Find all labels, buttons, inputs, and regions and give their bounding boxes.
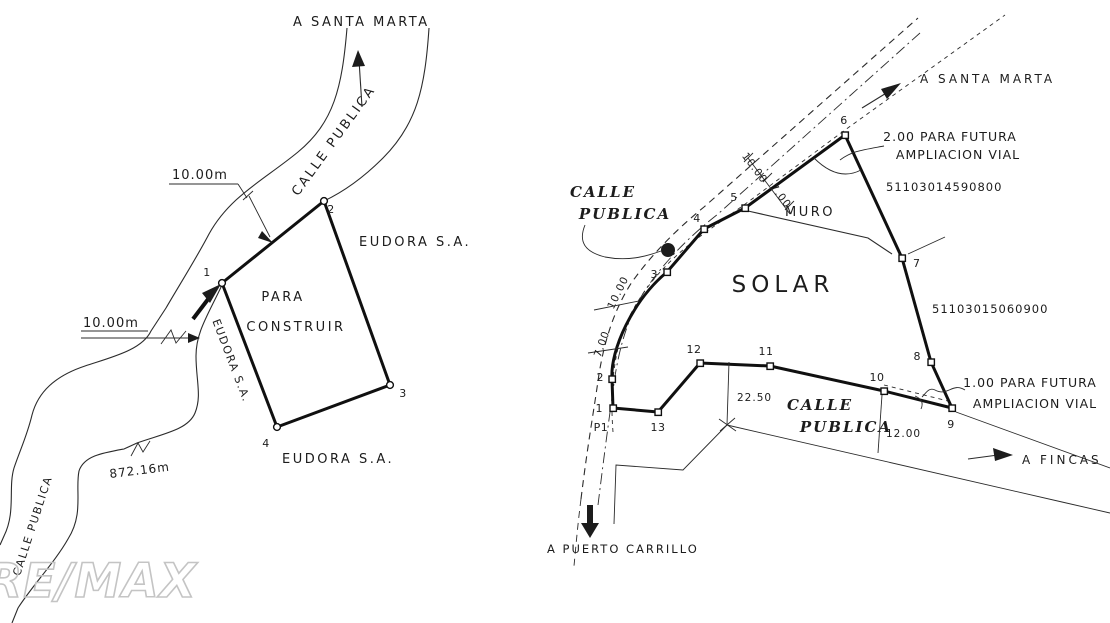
- vertex-6-label: 6: [840, 114, 848, 127]
- santa-marta-arrow-head: [352, 50, 365, 67]
- cadastral-right-number: 51103015060900: [932, 302, 1048, 316]
- vertex-1-label: 1: [596, 402, 604, 415]
- note-east-line2: AMPLIACION VIAL: [973, 396, 1097, 411]
- left-dim-side-break: [161, 330, 186, 344]
- left-vertex-1-marker: [219, 280, 226, 287]
- vertex-3-label: 3: [651, 268, 659, 281]
- vertex-12-marker: [697, 360, 703, 366]
- vertex-7-label: 7: [913, 257, 921, 270]
- dest-east-label: A FINCAS: [1022, 453, 1102, 467]
- bottom-road-label-2: PUBLICA: [799, 418, 892, 436]
- vertex-13-marker: [655, 409, 661, 415]
- vertex-p1-label: P1: [594, 421, 609, 434]
- vertex-8-label: 8: [914, 350, 922, 363]
- note-east-line1: 1.00 PARA FUTURA: [963, 375, 1097, 390]
- vertex-10-label: 10: [870, 371, 885, 384]
- vertex-3-marker: [664, 269, 670, 275]
- right-road-left-label-1: CALLE: [570, 183, 636, 201]
- note-top-line2: AMPLIACION VIAL: [896, 147, 1020, 162]
- calle-publica-leader: [582, 225, 661, 259]
- left-vertex-4-label: 4: [262, 437, 270, 450]
- parcel-use-line1: PARA: [261, 290, 304, 305]
- fincas-arrow-line: [968, 455, 998, 459]
- left-vertex-1-label: 1: [203, 266, 211, 279]
- vertex-1-marker: [610, 405, 616, 411]
- dim-road-w-1-label: 10.00: [605, 274, 631, 311]
- dim-22-line: [727, 362, 729, 425]
- parcel-use-line2: CONSTRUIR: [246, 320, 345, 335]
- angle-arc-vertex-6: [814, 158, 861, 174]
- left-vertex-2-label: 2: [327, 203, 335, 216]
- owner-bottom-label: EUDORA S.A.: [282, 452, 394, 467]
- dim-22-label: 22.50: [737, 392, 772, 404]
- vertex-12-label: 12: [687, 343, 702, 356]
- vertex-13-label: 13: [651, 421, 666, 434]
- road-length-label: 872.16m: [109, 460, 171, 481]
- vertex-5-marker: [742, 205, 748, 211]
- vertex-2-label: 2: [597, 371, 605, 384]
- road-break-symbol: [131, 441, 150, 456]
- note-top-leader: [840, 146, 884, 160]
- dim-road-w-2-label: 7.00: [592, 329, 613, 359]
- right-plan: P1 1 2 3 4 5 6 7 8 9 10 11 12 13 SOLAR M…: [547, 15, 1110, 566]
- left-dim-top-leader: [238, 184, 270, 237]
- muro-label: MURO: [785, 205, 835, 220]
- vertex-9-marker: [949, 405, 955, 411]
- bottom-road-west-connector: [614, 425, 727, 524]
- vertex-7-marker: [899, 255, 905, 261]
- puerto-carrillo-arrow: [581, 505, 599, 538]
- dest-south-label: A PUERTO CARRILLO: [547, 542, 699, 556]
- right-road-left-label-2: PUBLICA: [578, 205, 671, 223]
- vertex-4-label: 4: [693, 212, 701, 225]
- left-vertex-3-label: 3: [399, 387, 407, 400]
- fincas-arrow-head: [993, 448, 1013, 461]
- solar-label: SOLAR: [732, 272, 835, 298]
- santa-marta-ne-arrow-line: [862, 92, 888, 108]
- vertex-2-marker: [609, 376, 615, 382]
- plat-drawing: A SANTA MARTA CALLE PUBLICA CALLE PUBLIC…: [0, 0, 1110, 623]
- cadastral-top-number: 51103014590800: [886, 180, 1002, 194]
- left-dim-side-label: 10.00m: [83, 316, 139, 331]
- santa-marta-ne-arrow-head: [881, 83, 901, 99]
- vertex-5-label: 5: [730, 191, 738, 204]
- road-reference-dot: [661, 243, 675, 257]
- right-dest-top-label: A SANTA MARTA: [920, 72, 1055, 86]
- left-road-west-edge: [0, 28, 347, 545]
- vertex-7-leader: [908, 237, 945, 254]
- left-vertex-3-marker: [387, 382, 394, 389]
- vertex-6-marker: [842, 132, 848, 138]
- survey-plat-page: A SANTA MARTA CALLE PUBLICA CALLE PUBLIC…: [0, 0, 1110, 623]
- left-road-east-edge-upper: [324, 28, 429, 201]
- owner-right-label: EUDORA S.A.: [359, 235, 471, 250]
- vertex-8-marker: [928, 359, 934, 365]
- left-dest-top-label: A SANTA MARTA: [293, 15, 430, 30]
- left-dim-top-label: 10.00m: [172, 168, 228, 183]
- left-plan: A SANTA MARTA CALLE PUBLICA CALLE PUBLIC…: [0, 15, 471, 623]
- vertex-11-label: 11: [759, 345, 774, 358]
- remax-watermark: RE/MAX: [0, 554, 199, 609]
- left-vertex-4-marker: [274, 424, 281, 431]
- left-dim-side-arrow: [188, 333, 200, 343]
- vertex-10-marker: [881, 388, 887, 394]
- dim-12-label: 12.00: [886, 428, 921, 440]
- bottom-road-label-1: CALLE: [787, 396, 853, 414]
- left-dim-top-arrow: [258, 231, 273, 243]
- note-top-line1: 2.00 PARA FUTURA: [883, 129, 1017, 144]
- vertex-4-marker: [701, 226, 707, 232]
- vertex-9-label: 9: [947, 418, 955, 431]
- vertex-11-marker: [767, 363, 773, 369]
- dim-road-ne-2-label: 7.00: [767, 182, 793, 211]
- dim-road-ne-1-label: 10.00: [739, 151, 770, 186]
